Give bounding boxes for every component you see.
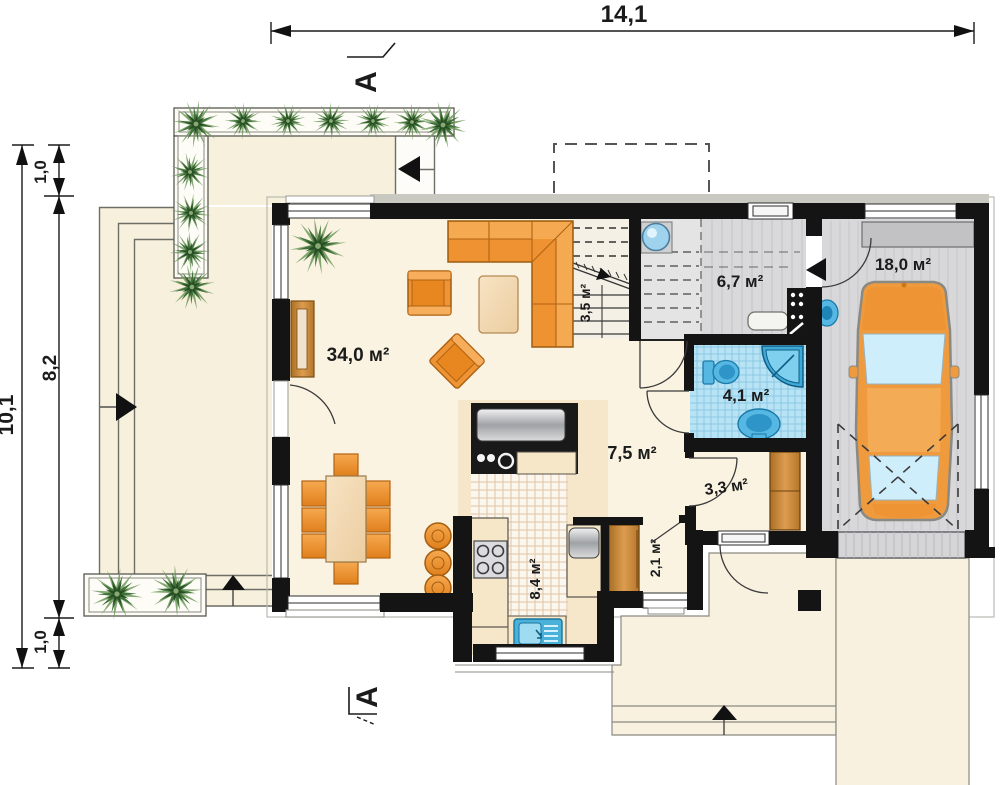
svg-text:1,0: 1,0 [31, 160, 50, 184]
svg-text:2,1 м²: 2,1 м² [647, 538, 663, 577]
svg-text:1,0: 1,0 [31, 630, 50, 654]
svg-text:8,4 м²: 8,4 м² [527, 558, 544, 599]
svg-text:6,7 м²: 6,7 м² [717, 272, 764, 291]
svg-text:18,0 м²: 18,0 м² [875, 255, 931, 274]
svg-text:14,1: 14,1 [601, 1, 648, 28]
svg-text:A: A [351, 686, 384, 708]
svg-text:34,0 м²: 34,0 м² [327, 345, 390, 366]
svg-text:7,5 м²: 7,5 м² [607, 443, 656, 463]
svg-text:10,1: 10,1 [0, 394, 18, 435]
svg-text:8,2: 8,2 [40, 355, 61, 381]
svg-text:3,5 м²: 3,5 м² [577, 283, 593, 322]
svg-text:A: A [350, 71, 383, 93]
svg-text:4,1 м²: 4,1 м² [723, 386, 770, 405]
